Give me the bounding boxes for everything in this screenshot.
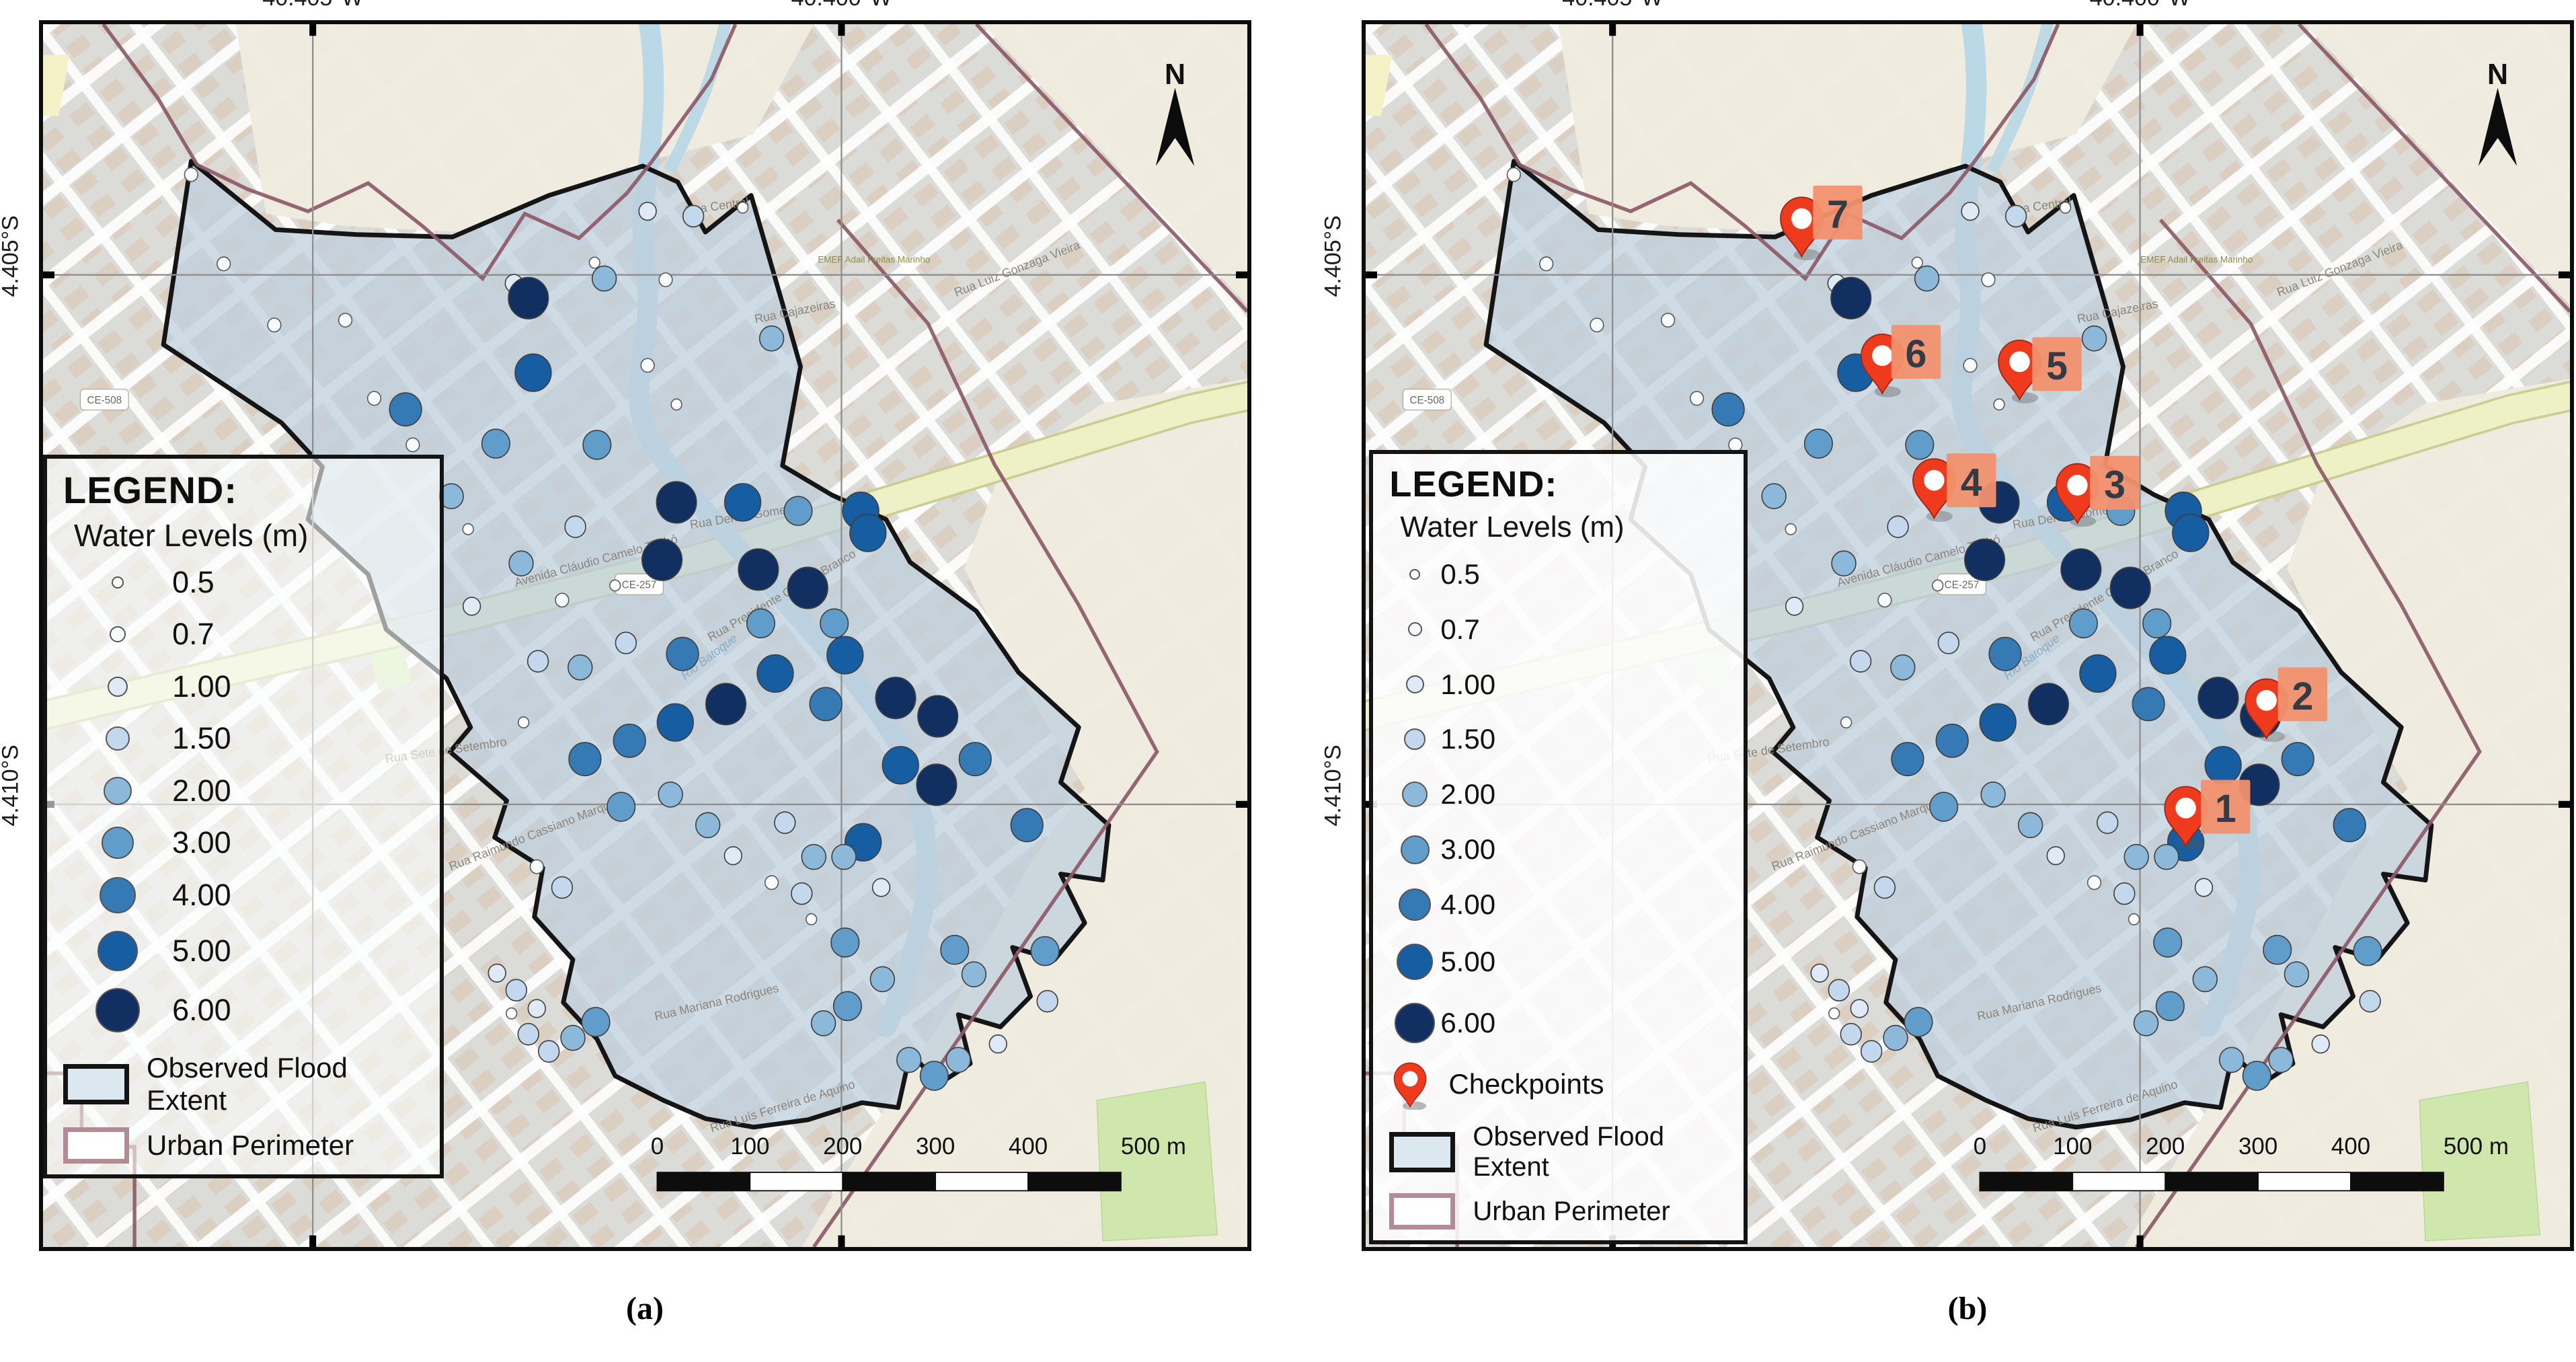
water-level-dot [506,979,526,1001]
water-level-dot [2114,883,2135,905]
legend-subtitle: Water Levels (m) [74,517,426,554]
water-level-dot [1887,516,1908,537]
water-level-dot [1690,391,1704,405]
svg-text:7: 7 [1827,193,1848,236]
water-level-dot [1938,632,1959,654]
svg-text:N: N [2487,59,2508,91]
legend-level-symbol [63,827,172,859]
water-level-dot [2150,636,2186,674]
scale-bar-label: 400 [2331,1133,2370,1160]
water-level-dot [515,354,551,391]
water-level-dot [1852,860,1866,873]
water-level-dot [706,683,746,725]
svg-text:CE-257: CE-257 [1945,579,1980,591]
water-level-dot [921,1061,949,1090]
water-level-dot [1832,551,1856,576]
legend-level-symbol [63,677,172,697]
water-level-dot [2111,567,2150,609]
legend-level-label: 1.00 [1440,669,1495,701]
axis-label-longitude: 40.405°W [1562,0,1663,11]
legend-level-row: 1.00 [63,669,426,704]
water-level-legend-dot [1395,1003,1435,1043]
legend-level-symbol [1389,782,1440,807]
water-level-dot [2134,1011,2158,1036]
water-level-dot [561,1026,585,1051]
legend-level-row: 5.00 [1389,944,1729,980]
water-level-dot [791,883,812,905]
panel-a-map: Rua CentralRua CajazeirasRua Luiz Gonzag… [39,20,1251,1251]
water-level-dot [820,609,849,638]
legend-level-row: 6.00 [1389,1003,1729,1043]
water-level-dot [659,273,672,287]
water-level-dot [765,876,779,889]
legend-level-symbol [1389,888,1440,921]
svg-text:4: 4 [1961,461,1982,504]
legend-level-row: 1.50 [1389,723,1729,755]
water-level-dot [850,514,886,552]
water-level-dot [565,516,586,537]
water-level-legend-dot [102,827,134,859]
school-label: EMEF Adail Freitas Marinho [818,254,930,264]
legend-level-row: 0.5 [63,565,426,600]
water-level-dot [724,847,742,865]
water-level-dot [2359,991,2380,1012]
water-level-dot [2060,202,2071,213]
svg-text:6: 6 [1906,333,1927,376]
legend-level-label: 0.7 [1440,613,1479,646]
water-level-dot [1878,593,1891,607]
scale-bar-label: 200 [823,1133,862,1160]
legend-level-row: 1.00 [1389,669,1729,701]
legend-level-row: 4.00 [63,877,426,913]
water-level-dot [1850,650,1871,672]
water-level-dot [882,747,919,784]
water-level-dot [518,717,529,728]
water-level-dot [1963,358,1977,372]
legend-urban-label: Urban Perimeter [147,1129,354,1162]
water-level-dot [1031,937,1059,966]
svg-text:CE-257: CE-257 [622,579,657,591]
water-level-dot [2353,937,2382,966]
scale-bar-label: 0 [1974,1133,1986,1160]
legend-level-symbol [1389,944,1440,980]
water-level-dot [1841,717,1852,728]
caption-a: (a) [626,1290,664,1327]
legend-level-label: 0.5 [1440,558,1479,591]
water-level-dot [1805,429,1833,458]
water-level-dot [2195,878,2213,897]
water-level-dot [1982,273,1995,287]
water-level-dot [831,928,859,957]
water-level-dot [2088,876,2101,889]
water-level-dot [725,484,761,521]
water-level-dot [897,1047,921,1072]
water-level-dot [2285,962,2309,987]
legend-level-label: 6.00 [172,993,231,1028]
water-level-dot [2070,609,2098,638]
scale-bar-label: 500 m [1121,1133,1186,1160]
legend-flood-label: Observed Flood Extent [147,1052,426,1117]
scale-bar-label: 100 [2053,1133,2092,1160]
water-level-dot [2198,677,2238,719]
water-level-legend-dot [1409,569,1420,580]
water-level-legend-dot [1401,835,1430,864]
water-level-dot [657,704,693,741]
scale-bar-label: 300 [916,1133,955,1160]
axis-label-latitude: 4.405°S [1321,256,1347,297]
scale-bar-label: 300 [2238,1133,2277,1160]
water-level-dot [658,782,682,807]
water-level-dot [607,792,635,821]
scale-bar-label: 0 [651,1133,664,1160]
water-level-dot [1590,318,1604,332]
water-level-dot [2143,609,2171,638]
water-level-dot [2173,514,2209,552]
legend-level-row: 5.00 [63,931,426,971]
water-level-dot [1915,266,1939,291]
water-level-dot [488,964,506,982]
legend-level-label: 0.7 [172,617,214,652]
legend-level-label: 2.00 [1440,778,1495,810]
water-level-dot [2269,1047,2293,1072]
water-level-dot [2263,936,2292,964]
legend-level-label: 3.00 [1440,833,1495,866]
water-level-dot [482,429,510,458]
water-level-dot [656,482,696,523]
scale-bar-label: 200 [2146,1133,2185,1160]
water-level-dot [568,655,592,680]
water-level-dot [592,266,617,291]
legend-level-symbol [1389,569,1440,580]
water-level-dot [2312,1035,2329,1053]
road-shield: CE-508 [1403,389,1452,410]
urban-perimeter-swatch [1389,1193,1455,1229]
water-level-dot [873,878,890,897]
water-level-dot [1965,539,2004,581]
water-level-dot [508,277,548,319]
checkpoint-label: 7 [1813,186,1862,239]
legend-level-label: 2.00 [172,773,231,808]
water-level-dot [1011,808,1043,841]
water-level-dot [184,167,198,181]
water-level-dot [1828,979,1849,1001]
water-level-dot [1981,782,2005,807]
water-level-legend-dot [1404,728,1426,750]
legend-level-row: 0.5 [1389,558,1729,591]
road-shield: CE-508 [81,389,129,410]
water-level-dot [1994,399,2004,410]
water-level-dot [1883,1026,1908,1051]
water-level-legend-dot [1402,782,1428,807]
water-level-dot [1861,1041,1882,1062]
water-level-dot [615,632,636,654]
legend-level-label: 0.5 [172,565,214,600]
legend-level-symbol [63,988,172,1032]
water-level-dot [1507,167,1520,181]
legend-level-label: 4.00 [1440,888,1495,921]
legend-level-row: 4.00 [1389,888,1729,921]
axis-label-longitude: 40.405°W [262,0,363,11]
axis-label-latitude: 4.405°S [0,256,24,297]
legend-levels: 0.50.71.001.502.003.004.005.006.00 [1389,547,1729,1055]
checkpoint-label: 3 [2090,456,2139,510]
svg-text:3: 3 [2104,463,2125,506]
legend-level-row: 2.00 [63,773,426,808]
legend-level-symbol [63,626,172,642]
legend-levels: 0.50.71.001.502.003.004.005.006.00 [63,556,426,1041]
water-level-dot [812,1011,836,1036]
water-level-dot [2080,655,2116,693]
water-level-dot [2061,549,2101,591]
water-level-legend-dot [95,988,140,1032]
legend-level-label: 5.00 [172,934,231,969]
water-level-dot [1786,597,1803,615]
water-level-dot [2047,847,2064,865]
legend-urban-row: Urban Perimeter [1389,1193,1729,1229]
checkpoint-pin-icon [1389,1059,1431,1110]
water-level-dot [1811,964,1828,982]
legend-level-symbol [1389,835,1440,864]
axis-label-latitude: 4.410°S [1321,786,1347,826]
legend-flood-row: Observed Flood Extent [1389,1122,1729,1182]
water-level-legend-dot [104,777,132,805]
svg-text:CE-508: CE-508 [1410,395,1445,406]
water-level-legend-dot [106,726,130,751]
water-level-dot [738,549,778,591]
water-level-dot [760,326,784,351]
water-level-dot [738,202,748,213]
water-level-dot [2193,967,2217,991]
park-area [1097,1082,1217,1241]
water-level-dot [962,962,986,987]
water-level-dot [569,743,601,775]
water-level-dot [583,430,611,459]
water-level-dot [1850,999,1868,1018]
checkpoint-label: 2 [2278,667,2327,721]
water-level-dot [875,677,915,719]
water-level-dot [747,609,775,638]
water-level-dot [1712,393,1744,426]
water-level-dot [1989,638,2021,671]
water-level-dot [2132,687,2164,720]
water-level-dot [806,914,817,925]
water-level-dot [463,524,473,535]
water-level-dot [1904,1008,1933,1036]
flood-map-figure: Rua CentralRua CajazeirasRua Luiz Gonzag… [0,0,2576,1362]
water-level-dot [802,845,826,870]
legend-title: LEGEND: [63,468,426,512]
water-level-dot [1840,1024,1861,1045]
water-level-dot [946,1047,970,1072]
scale-bar-label: 500 m [2444,1133,2509,1160]
water-level-dot [784,496,812,525]
water-level-dot [810,687,842,720]
water-level-dot [639,202,656,221]
legend-subtitle: Water Levels (m) [1400,510,1729,544]
legend-level-symbol [1389,622,1440,636]
water-level-dot [989,1035,1007,1053]
water-level-dot [589,257,600,268]
legend-level-row: 6.00 [63,988,426,1032]
panel-b-map: Rua CentralRua CajazeirasRua Luiz Gonzag… [1362,20,2574,1251]
legend-level-symbol [63,726,172,751]
water-level-legend-dot [1399,888,1431,921]
axis-label-longitude: 40.400°W [791,0,892,11]
legend-level-label: 3.00 [172,825,231,860]
water-level-dot [2029,683,2068,725]
legend-level-symbol [63,877,172,913]
water-level-legend-dot [97,931,138,971]
water-level-dot [1912,257,1922,268]
water-level-dot [1961,202,1979,221]
water-level-legend-dot [110,626,126,642]
water-level-dot [2097,812,2118,833]
water-level-dot [1762,484,1786,508]
water-level-dot [959,743,991,775]
water-level-dot [642,539,682,581]
legend-flood-row: Observed Flood Extent [63,1052,426,1117]
legend-level-label: 1.50 [172,721,231,756]
water-level-dot [775,812,795,833]
legend-level-row: 3.00 [63,825,426,860]
water-level-dot [506,1008,517,1019]
scale-bar-label: 400 [1009,1133,1048,1160]
checkpoint-label: 5 [2032,337,2081,391]
water-level-dot [916,764,956,806]
legend-level-row: 2.00 [1389,778,1729,810]
water-level-dot [509,551,533,576]
water-level-dot [832,845,856,870]
water-level-dot [1662,313,1675,327]
svg-text:2: 2 [2292,675,2313,718]
water-level-dot [1875,877,1896,899]
water-level-dot [582,1008,610,1036]
water-level-dot [2154,845,2179,870]
water-level-legend-dot [112,576,124,589]
water-level-dot [918,695,958,737]
water-level-dot [757,655,793,693]
water-level-dot [1891,743,1924,775]
school-label: EMEF Adail Freitas Marinho [2140,254,2253,264]
axis-label-latitude: 4.410°S [0,786,24,826]
water-level-legend-dot [108,677,128,697]
water-level-dot [870,967,894,991]
water-level-dot [1936,724,1968,757]
water-level-dot [827,636,863,674]
legend-urban-row: Urban Perimeter [63,1127,426,1164]
water-level-dot [530,860,543,873]
legend-level-symbol [63,777,172,805]
legend-level-row: 0.7 [63,617,426,652]
water-level-dot [528,999,545,1018]
svg-text:1: 1 [2215,788,2236,831]
water-level-dot [2124,845,2148,870]
axis-label-longitude: 40.400°W [2090,0,2191,11]
water-level-dot [518,1024,539,1045]
legend-level-symbol [1389,1003,1440,1043]
water-level-dot [1831,277,1871,319]
water-level-dot [2243,1061,2271,1090]
flood-extent-swatch [63,1064,129,1104]
water-level-dot [1891,655,1915,680]
water-level-dot [268,318,281,332]
legend-box-b: LEGEND:Water Levels (m)0.50.71.001.502.0… [1369,450,1747,1245]
water-level-dot [539,1041,559,1062]
water-level-dot [1829,1008,1840,1019]
water-level-dot [1037,991,1058,1012]
legend-level-symbol [63,931,172,971]
water-level-dot [406,438,420,451]
water-level-dot [552,877,573,899]
legend-level-label: 1.00 [172,669,231,704]
legend-title: LEGEND: [1389,463,1729,505]
water-level-dot [2082,326,2107,351]
svg-text:5: 5 [2046,345,2068,388]
legend-level-symbol [1389,728,1440,750]
caption-b: (b) [1948,1290,1988,1327]
water-level-dot [671,399,682,410]
water-level-dot [941,936,969,964]
water-level-dot [696,812,720,837]
checkpoint-label: 6 [1891,325,1941,379]
water-level-dot [2156,991,2185,1020]
water-level-dot [1540,257,1553,270]
water-level-legend-dot [1397,944,1433,980]
water-level-dot [2220,1047,2244,1072]
legend-level-label: 5.00 [1440,946,1495,978]
legend-level-label: 4.00 [172,878,231,913]
water-level-dot [641,358,654,372]
legend-level-row: 0.7 [1389,613,1729,646]
water-level-dot [1906,430,1934,459]
water-level-legend-dot [1408,622,1422,636]
water-level-dot [555,593,569,607]
water-level-dot [2019,812,2043,837]
legend-box-a: LEGEND:Water Levels (m)0.50.71.001.502.0… [43,455,444,1178]
water-level-dot [217,257,231,270]
flood-extent-swatch [1389,1132,1455,1172]
checkpoint-label: 4 [1947,453,1996,507]
water-level-dot [683,205,704,227]
water-level-dot [2205,747,2241,784]
scale-bar-label: 100 [730,1133,769,1160]
legend-checkpoints-row: Checkpoints [1389,1059,1729,1110]
water-level-dot [2281,743,2314,775]
legend-level-label: 1.50 [1440,723,1495,755]
water-level-dot [2006,205,2027,227]
water-level-dot [339,313,352,327]
water-level-dot [2333,808,2366,841]
svg-text:N: N [1165,59,1185,91]
svg-text:CE-508: CE-508 [87,395,122,406]
water-level-dot [1930,792,1958,821]
legend-flood-label: Observed Flood Extent [1473,1122,1729,1182]
checkpoint-label: 1 [2201,780,2250,834]
water-level-dot [1785,524,1796,535]
legend-checkpoints-label: Checkpoints [1448,1068,1604,1100]
water-level-dot [834,991,862,1020]
legend-level-row: 3.00 [1389,833,1729,866]
legend-level-row: 1.50 [63,721,426,756]
legend-level-label: 6.00 [1440,1007,1495,1039]
water-level-dot [666,638,699,671]
water-level-dot [528,650,549,672]
water-level-dot [613,724,646,757]
park-area [2419,1082,2540,1241]
water-level-dot [2129,914,2140,925]
legend-level-symbol [1389,675,1440,693]
water-level-dot [1933,580,1943,591]
